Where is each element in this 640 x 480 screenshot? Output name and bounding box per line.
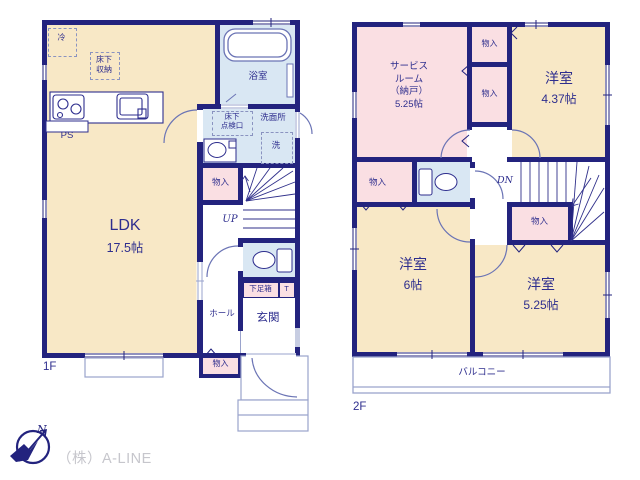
wall <box>295 20 300 358</box>
floor1-label: 1F <box>43 360 73 374</box>
closet-b-label: 物入 <box>474 89 505 99</box>
wall <box>42 353 300 358</box>
wall <box>470 198 475 209</box>
wall <box>412 202 475 207</box>
closet-c-label: 物入 <box>362 177 393 188</box>
wall <box>507 240 610 245</box>
wall <box>238 238 300 243</box>
room-se-size-label: 5.25帖 <box>496 298 586 313</box>
room-sw-name-label: 洋室 <box>368 256 458 274</box>
underfloor-storage-label: 床下 収納 <box>87 55 121 75</box>
closet-south-label: 物入 <box>203 359 238 369</box>
balcony-label: バルコニー <box>428 367 536 379</box>
wall <box>352 22 610 27</box>
wall <box>42 20 47 358</box>
wall <box>238 163 243 205</box>
company-name: （株）A-LINE <box>57 450 167 468</box>
ldk-name-label: LDK <box>70 216 180 236</box>
wall <box>215 20 220 109</box>
washroom-label: 洗面所 <box>250 112 296 123</box>
hall-label: ホール <box>204 308 240 319</box>
wall <box>238 243 243 247</box>
floor2-label: 2F <box>353 400 383 414</box>
stairs-down-label: DN <box>492 175 518 187</box>
room-toilet-1f-area <box>243 243 295 277</box>
wall <box>605 22 610 357</box>
stairs-up-label: UP <box>218 214 242 227</box>
wall <box>238 282 243 331</box>
stairs-1f <box>242 168 296 228</box>
wall <box>470 162 475 168</box>
closet-a-label: 物入 <box>474 39 505 49</box>
wall <box>470 239 475 352</box>
laundry-label: 洗 <box>263 140 289 151</box>
room-sw-size-label: 6帖 <box>368 278 458 293</box>
wall <box>568 202 573 245</box>
wall <box>412 162 417 207</box>
compass-icon: N <box>10 423 49 463</box>
room-toilet-2f-area <box>417 162 470 202</box>
bathroom-label: 浴室 <box>236 71 280 83</box>
wall <box>507 22 512 130</box>
room-ne-name-label: 洋室 <box>514 70 604 88</box>
wall <box>197 104 300 109</box>
wall <box>352 352 610 357</box>
room-se-name-label: 洋室 <box>496 276 586 294</box>
wall <box>238 277 300 282</box>
wall-opening <box>238 331 243 353</box>
shoe-t-label: T <box>279 284 294 293</box>
wall <box>197 300 203 353</box>
underfloor-hatch-label: 床下 点検口 <box>213 112 251 131</box>
floorplan-canvas: N 冷 床下 収納 PS 浴室 洗面所 床下 点検口 洗 物入 UP LDK 1… <box>0 0 640 480</box>
wall <box>352 22 357 357</box>
wall <box>507 157 610 162</box>
wall <box>507 202 573 207</box>
wall <box>197 200 243 205</box>
service-room-label: サービス ルーム （納戸） 5.25帖 <box>373 61 445 111</box>
closet-d-label: 物入 <box>524 216 555 227</box>
compass-north-label: N <box>36 423 47 436</box>
pipe-space-label: PS <box>50 130 84 142</box>
entrance-label: 玄関 <box>245 311 291 325</box>
shoe-box-label: 下足箱 <box>244 284 277 293</box>
wall <box>467 122 512 127</box>
ldk-size-label: 17.5帖 <box>70 241 180 257</box>
wall <box>507 202 512 245</box>
wall <box>467 62 512 67</box>
wall <box>467 22 472 130</box>
terrace <box>85 358 163 377</box>
entrance-porch <box>238 356 308 431</box>
wall <box>42 20 300 25</box>
wall <box>352 202 417 207</box>
room-ne-size-label: 4.37帖 <box>514 92 604 107</box>
closet-mid-label: 物入 <box>203 177 238 188</box>
sliding-door <box>196 262 204 300</box>
room-bathroom-area <box>220 25 295 104</box>
refrigerator-label: 冷 <box>48 33 75 43</box>
wall <box>197 104 203 110</box>
